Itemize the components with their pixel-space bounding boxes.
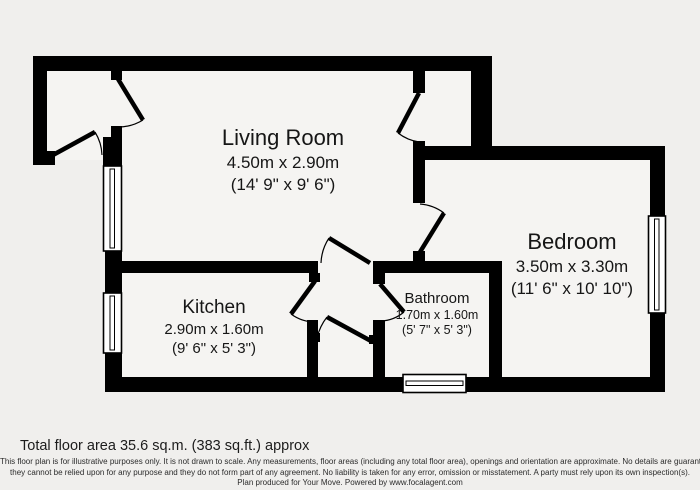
room-label-living-room: Living Room 4.50m x 2.90m (14' 9" x 9' 6… [222,124,344,196]
living-room-window [104,166,122,251]
floor-plan-page: Living Room 4.50m x 2.90m (14' 9" x 9' 6… [0,0,700,490]
room-label-kitchen: Kitchen 2.90m x 1.60m (9' 6" x 5' 3") [164,296,263,358]
kitchen-window [104,293,122,353]
kitchen-dims-metric: 2.90m x 1.60m [164,320,263,339]
disclaimer-line-1: This floor plan is for illustrative purp… [0,457,700,468]
bathroom-dims-imperial: (5' 7" x 5' 3") [396,323,479,338]
kitchen-dims-imperial: (9' 6" x 5' 3") [164,339,263,358]
room-label-bathroom: Bathroom 1.70m x 1.60m (5' 7" x 5' 3") [396,290,479,338]
bedroom-dims-imperial: (11' 6" x 10' 10") [511,278,633,300]
disclaimer: This floor plan is for illustrative purp… [0,457,700,489]
total-floor-area-text: Total floor area 35.6 sq.m. (383 sq.ft.)… [20,438,309,454]
bedroom-window [649,216,666,313]
bathroom-window [403,375,466,393]
bathroom-dims-metric: 1.70m x 1.60m [396,308,479,323]
bedroom-name: Bedroom [511,228,633,256]
living-room-name: Living Room [222,124,344,152]
floor-fill [40,60,662,390]
bathroom-name: Bathroom [396,290,479,308]
disclaimer-line-2: they cannot be relied upon for any purpo… [0,468,700,479]
floor-plan-drawing [0,0,700,432]
kitchen-name: Kitchen [164,296,263,320]
room-label-bedroom: Bedroom 3.50m x 3.30m (11' 6" x 10' 10") [511,228,633,300]
living-room-dims-imperial: (14' 9" x 9' 6") [222,174,344,196]
plan-credit-line: Plan produced for Your Move. Powered by … [0,478,700,489]
living-room-dims-metric: 4.50m x 2.90m [222,152,344,174]
bedroom-dims-metric: 3.50m x 3.30m [511,256,633,278]
